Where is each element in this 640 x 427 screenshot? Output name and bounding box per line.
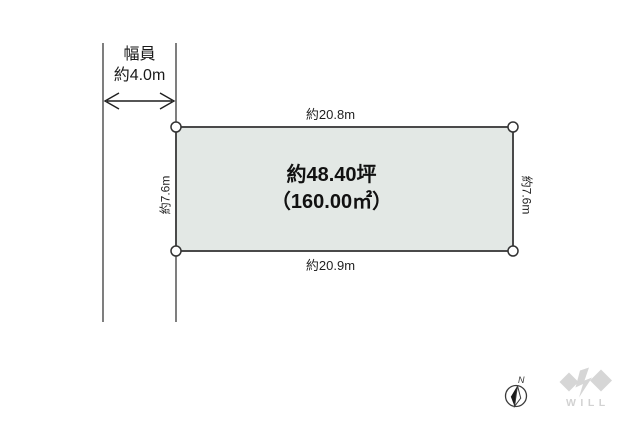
- road-width-label: 幅員 約4.0m: [103, 44, 176, 86]
- will-logo: WILL: [560, 368, 613, 410]
- will-logo-left-diamond: [560, 373, 579, 392]
- dimension-top: 約20.8m: [162, 104, 499, 123]
- dimension-bottom: 約20.9m: [162, 255, 499, 274]
- will-logo-bolt: [576, 368, 593, 398]
- road-width-label-line2: 約4.0m: [103, 65, 176, 86]
- compass-icon: N: [506, 375, 527, 407]
- plot-area-sqm: （160.00㎡）: [271, 189, 392, 216]
- dimension-right: 約7.6m: [519, 176, 536, 215]
- road-width-label-line1: 幅員: [103, 44, 176, 65]
- plot-area-label: 約48.40坪 （160.00㎡）: [163, 127, 500, 251]
- compass-north-label: N: [518, 375, 525, 385]
- will-logo-right-diamond: [590, 370, 612, 392]
- plot-area-tsubo: 約48.40坪: [286, 162, 376, 189]
- land-plot-diagram: N WILL 幅員 約4.0m 約20.8m 約20.9m 約7.6m 約7.6…: [0, 0, 640, 427]
- plot-vertex-bottom-right: [508, 246, 518, 256]
- will-logo-text: WILL: [566, 397, 610, 409]
- plot-vertex-top-right: [508, 122, 518, 132]
